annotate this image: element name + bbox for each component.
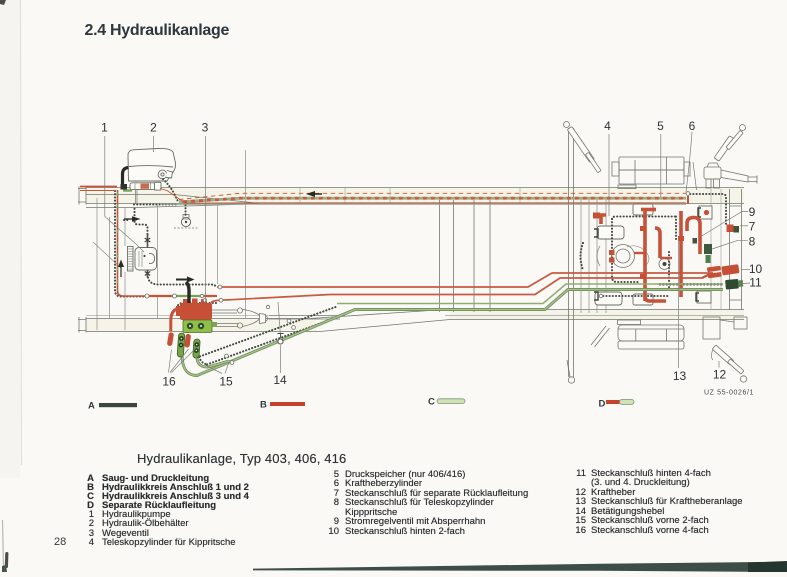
svg-text:B: B: [260, 400, 267, 411]
svg-text:8: 8: [749, 235, 756, 249]
svg-text:7: 7: [749, 220, 756, 234]
svg-text:5: 5: [657, 119, 664, 133]
svg-text:A: A: [88, 401, 95, 412]
svg-text:D: D: [599, 399, 606, 410]
svg-text:3: 3: [202, 121, 209, 135]
svg-text:C: C: [428, 397, 435, 408]
svg-text:13: 13: [673, 369, 687, 383]
svg-text:6: 6: [689, 119, 696, 133]
svg-text:4: 4: [604, 119, 611, 133]
svg-text:11: 11: [749, 276, 762, 290]
svg-text:9: 9: [749, 205, 756, 219]
svg-text:16: 16: [162, 375, 176, 389]
svg-text:1: 1: [101, 121, 108, 135]
svg-text:12: 12: [713, 368, 727, 382]
svg-text:2: 2: [150, 121, 157, 135]
svg-text:14: 14: [273, 373, 287, 387]
svg-text:UZ 55-0026/1: UZ 55-0026/1: [704, 390, 754, 397]
svg-text:10: 10: [749, 262, 763, 276]
svg-text:15: 15: [219, 375, 233, 389]
